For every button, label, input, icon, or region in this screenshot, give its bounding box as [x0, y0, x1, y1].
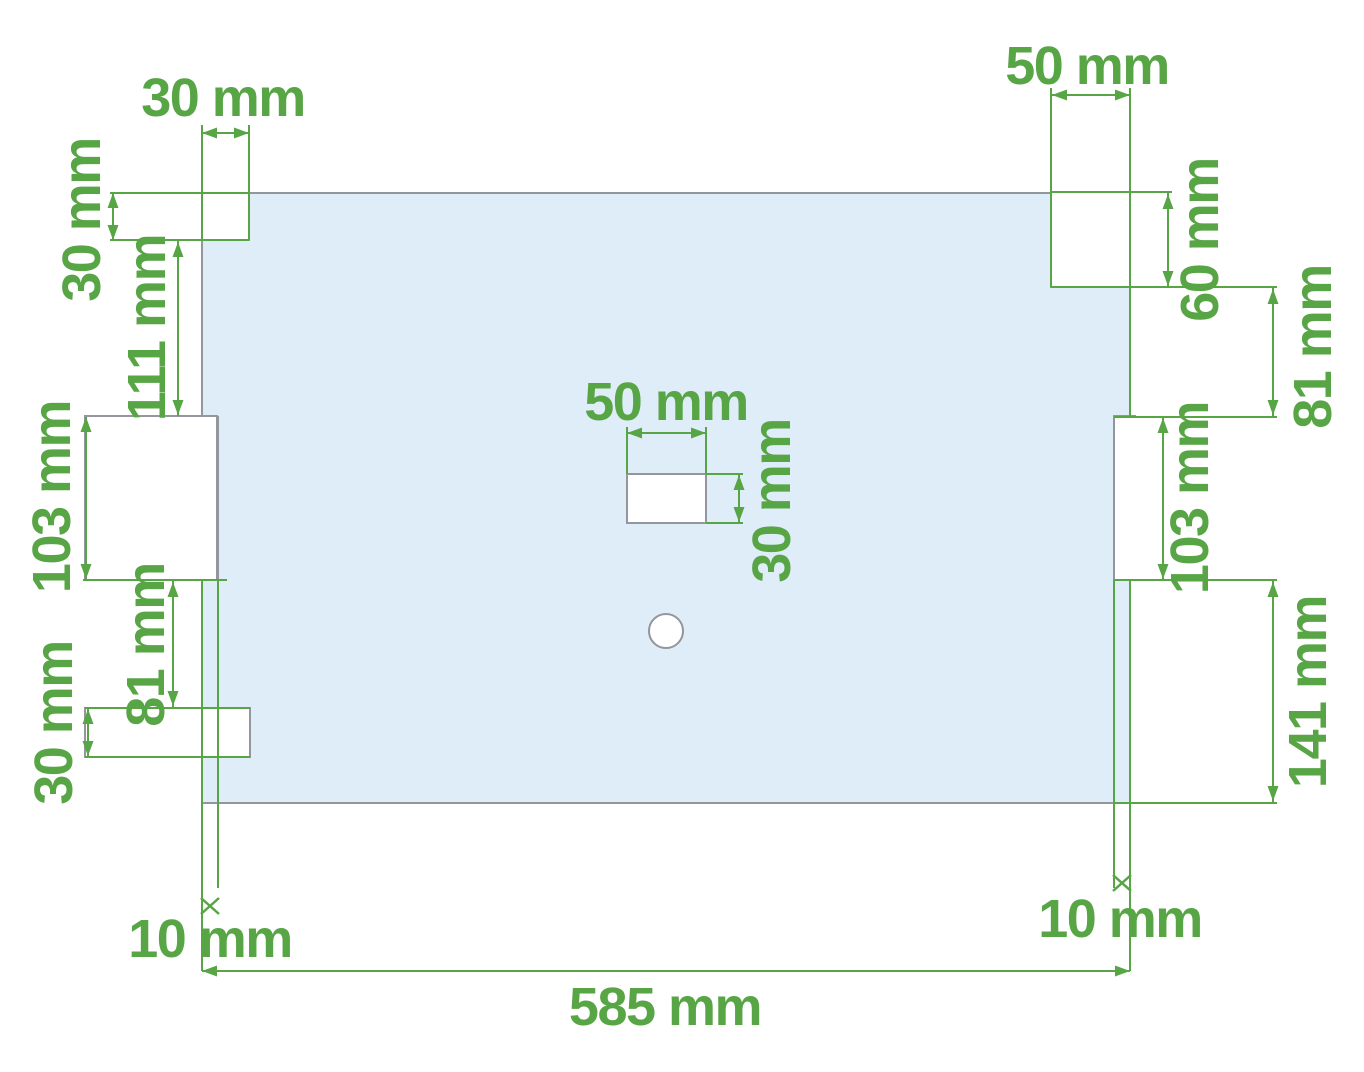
dim-label-right-notch-to-slot: 81 mm	[1286, 265, 1340, 429]
center-cutout-rect	[627, 474, 706, 523]
dim-label-bottom-left-notch: 30 mm	[27, 641, 81, 805]
dim-label-center-hole-height: 30 mm	[745, 419, 799, 583]
dim-label-left-slot-height: 103 mm	[25, 401, 79, 593]
dim-label-top-right-notch-height: 60 mm	[1173, 158, 1227, 322]
dim-label-left-notch-to-slot: 111 mm	[120, 235, 174, 421]
dim-top-left-notch	[108, 125, 250, 240]
dim-label-right-slot-height: 103 mm	[1163, 402, 1217, 594]
dim-label-top-left-notch-width: 30 mm	[141, 71, 305, 125]
dim-label-left-slot-to-notch: 81 mm	[119, 563, 173, 727]
dim-label-panel-width: 585 mm	[569, 980, 761, 1034]
dim-right-60	[1051, 192, 1174, 287]
dim-label-left-slot-depth: 10 mm	[128, 912, 292, 966]
panel-dimension-diagram: 30 mm 30 mm 111 mm 103 mm 81 mm 30 mm 10…	[0, 0, 1364, 1072]
right-slot-border	[1114, 416, 1136, 580]
dim-panel-585	[202, 966, 1130, 977]
dim-label-top-right-notch-width: 50 mm	[1005, 39, 1169, 93]
dim-label-center-hole-width: 50 mm	[584, 375, 748, 429]
dim-label-right-slot-to-bottom: 141 mm	[1281, 596, 1335, 788]
dim-label-right-slot-depth: 10 mm	[1038, 892, 1202, 946]
dim-label-top-left-notch-height: 30 mm	[55, 138, 109, 302]
center-round-hole	[649, 614, 683, 648]
left-slot-rect	[85, 416, 217, 580]
dim-right-141	[1114, 580, 1279, 803]
